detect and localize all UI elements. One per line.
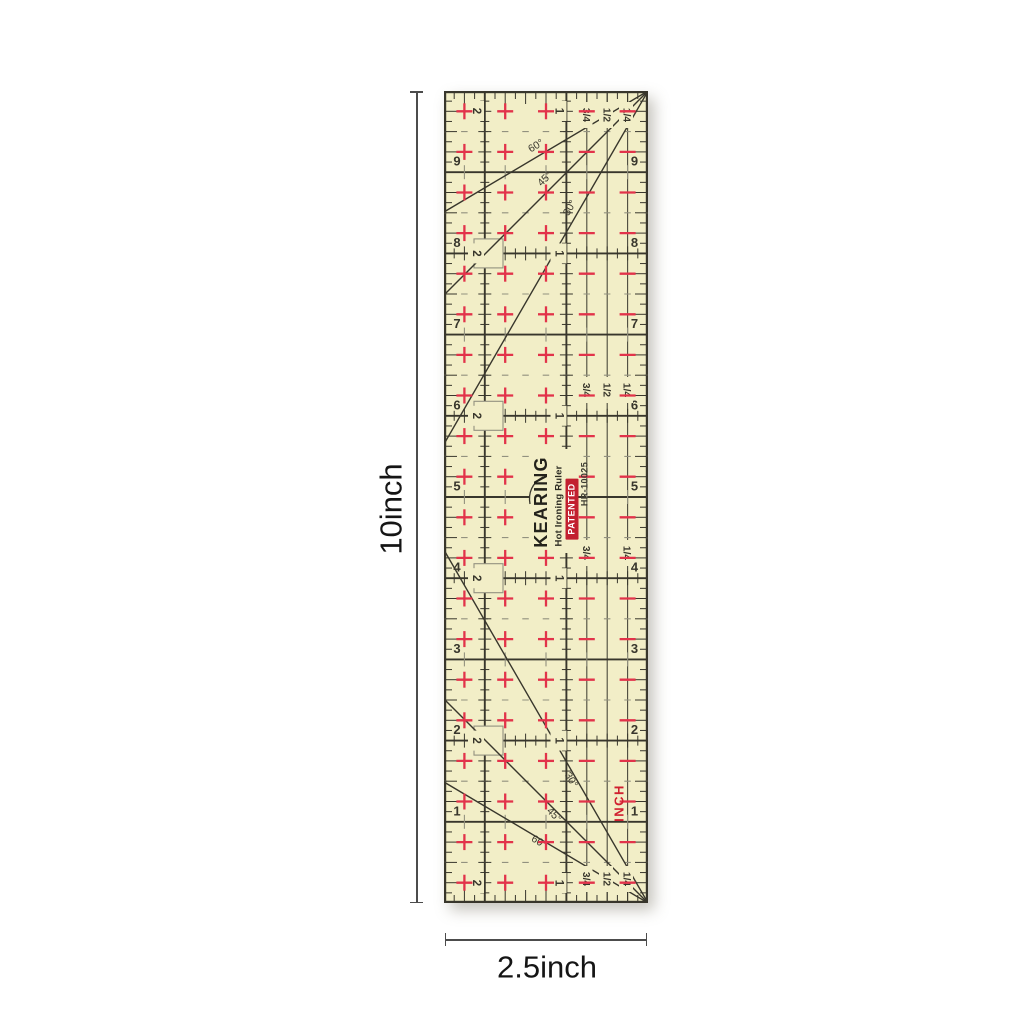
fraction-label: 1/4 <box>621 108 632 122</box>
edge-number-right: 5 <box>631 479 638 494</box>
edge-number-left: 5 <box>453 479 460 494</box>
column-label: 2 <box>470 413 482 419</box>
width-dimension-line <box>445 939 647 941</box>
edge-number-right: 3 <box>631 641 638 656</box>
edge-number-right: 1 <box>631 803 638 818</box>
column-label: 2 <box>470 737 482 743</box>
height-dimension-cap-top <box>410 91 423 93</box>
brand-text: KEARING <box>532 456 550 547</box>
fraction-label: 3/4 <box>580 108 591 122</box>
edge-number-right: 2 <box>631 722 638 737</box>
ruler: 60°60°45°45°30°30°9988776655443322112121… <box>444 91 648 903</box>
edge-number-left: 1 <box>453 803 460 818</box>
width-dimension-cap-right <box>646 933 648 946</box>
fraction-label: 1/2 <box>601 108 612 122</box>
column-label: 2 <box>470 250 482 256</box>
column-label: 2 <box>470 575 482 581</box>
fraction-label: 1/4 <box>621 872 632 886</box>
fraction-label: 3/4 <box>580 872 591 886</box>
product-name: Hot Ironing Ruler <box>554 466 564 547</box>
column-label: 1 <box>553 880 565 887</box>
edge-number-right: 8 <box>631 235 638 250</box>
column-label: 1 <box>553 413 565 420</box>
edge-number-left: 8 <box>453 235 460 250</box>
column-label: 1 <box>553 108 565 115</box>
height-dimension-cap-bottom <box>410 902 423 904</box>
width-dimension-cap-left <box>445 933 447 946</box>
unit-label: INCH <box>613 784 626 822</box>
column-label: 1 <box>553 575 565 582</box>
edge-number-left: 4 <box>453 560 461 575</box>
product-dimension-image: 10inch 2.5inch 60°60°45°45°30°30°9988776… <box>0 0 1024 1024</box>
edge-number-right: 9 <box>631 154 638 169</box>
width-dimension-label: 2.5inch <box>497 952 597 983</box>
fraction-label: 1/2 <box>601 383 612 397</box>
height-dimension-label: 10inch <box>376 463 407 554</box>
column-label: 1 <box>553 737 565 744</box>
fraction-label: 1/2 <box>601 872 612 886</box>
edge-number-right: 7 <box>631 316 638 331</box>
column-label: 1 <box>553 250 565 257</box>
edge-number-left: 9 <box>453 154 460 169</box>
height-dimension-line <box>416 92 418 903</box>
edge-number-left: 2 <box>453 722 460 737</box>
edge-number-left: 6 <box>453 397 460 412</box>
model-number: HR-10025 <box>581 462 590 506</box>
patented-badge: PATENTED <box>565 478 578 539</box>
edge-number-left: 3 <box>453 641 460 656</box>
edge-number-left: 7 <box>453 316 460 331</box>
